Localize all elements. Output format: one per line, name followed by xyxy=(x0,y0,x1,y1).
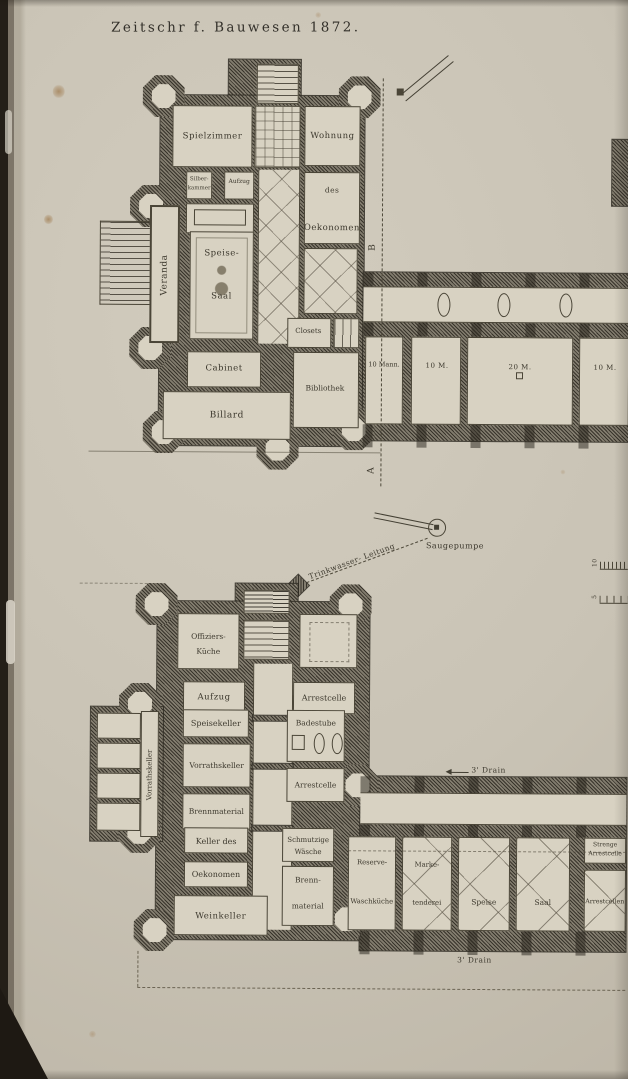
buttress-band xyxy=(359,948,625,956)
stove-oval xyxy=(437,293,450,317)
closet-cells xyxy=(333,318,359,348)
wing-room-label-waschkueche: Waschküche xyxy=(350,897,393,905)
page-edge-left xyxy=(0,0,26,1079)
bath-stove xyxy=(292,735,305,750)
stove-oval xyxy=(497,293,510,317)
page-edge-top xyxy=(0,0,628,7)
room-label-silberkammer-1: Silber- xyxy=(190,176,209,182)
boundary-dashed-line xyxy=(137,951,138,987)
room-schmutzige-waesche xyxy=(282,828,334,862)
flue-base xyxy=(397,88,404,95)
room-label-oekonomen-basement: Oekonomen xyxy=(192,870,240,879)
bathtub xyxy=(314,733,325,754)
room-label-veranda: Veranda xyxy=(159,255,169,296)
staircase xyxy=(257,64,299,104)
stain xyxy=(44,214,53,224)
pump-label: Saugepumpe xyxy=(426,541,484,550)
pipe-label: Trinkwasser- Leitung xyxy=(308,541,397,581)
room-label-saal: Saal xyxy=(211,291,232,301)
room-label-spielzimmer: Spielzimmer xyxy=(183,131,243,141)
boundary-dashed-line xyxy=(137,987,625,991)
page-edge-right xyxy=(614,0,628,1079)
plate-artwork: Zeitschr f. Bauwesen 1872. Veranda Spiel… xyxy=(0,0,628,1079)
room-label-silberkammer-2: kammer xyxy=(188,185,211,191)
room-offiziers-kueche xyxy=(177,613,239,669)
annex-cell xyxy=(97,743,141,769)
stove-square xyxy=(516,372,523,379)
cellar-room-dashed-vault xyxy=(309,622,349,662)
room-label-closets: Closets xyxy=(295,327,321,335)
buttress-band xyxy=(363,440,628,449)
drain-label-top: 3' Drain xyxy=(471,765,506,774)
room-label-speise: Speise- xyxy=(204,248,239,258)
wall-pier-band xyxy=(364,272,628,288)
wall-pier-band xyxy=(360,824,626,838)
scale-bar-label-top: 10 xyxy=(591,558,598,567)
room-label-des: des xyxy=(325,186,340,195)
wing-room-label-marke: Marke- xyxy=(415,861,440,869)
room-label-kueche: Küche xyxy=(196,647,220,656)
wing-room-label-20m: 20 M. xyxy=(509,363,532,371)
flue-line xyxy=(405,61,453,101)
room-aufzug xyxy=(224,171,254,199)
room-label-keller-des: Keller des xyxy=(196,837,237,846)
tower-room xyxy=(145,592,169,616)
stove-oval xyxy=(559,293,572,317)
section-marker-b: B xyxy=(368,244,378,251)
room-label-material: material xyxy=(292,901,324,910)
flue-line xyxy=(400,55,448,95)
pump-handle xyxy=(374,512,434,530)
room-label-arrestcelle-a: Arrestcelle xyxy=(302,693,347,702)
room-label-speisekeller: Speisekeller xyxy=(191,719,241,728)
room-label-aufzug-basement: Aufzug xyxy=(197,692,230,702)
garden-steps xyxy=(99,221,150,305)
scale-bar-label-bottom: 5 xyxy=(591,595,598,599)
pump-core xyxy=(434,525,439,530)
plate-title: Zeitschr f. Bauwesen 1872. xyxy=(111,19,360,35)
wing-room-label-10m: 10 M. xyxy=(426,362,449,370)
tower-room xyxy=(143,918,167,942)
wing-corridor-basement xyxy=(360,792,626,826)
ground-line xyxy=(89,451,381,454)
room-label-waesche: Wäsche xyxy=(295,848,322,856)
wing-room-20m xyxy=(467,337,574,426)
page-edge-bottom xyxy=(0,1070,628,1079)
wing-room-label-saal: Saal xyxy=(535,898,552,907)
stain xyxy=(315,12,321,18)
section-marker-a: A xyxy=(366,467,376,474)
buffet-table xyxy=(194,209,246,225)
room-label-schmutzige: Schmutzige xyxy=(287,836,329,844)
room-label-wohnung: Wohnung xyxy=(310,131,354,141)
torn-paper-edge xyxy=(5,110,12,154)
wall-pier-band xyxy=(360,776,626,794)
stain xyxy=(53,84,65,98)
drain-arrow-line xyxy=(449,772,469,773)
room-label-vorrathskeller-vertical: Vorrathskeller xyxy=(145,750,153,801)
room-label-badestube: Badestube xyxy=(296,718,336,727)
drain-label-bottom: 3' Drain xyxy=(457,955,492,964)
wing-room-10mann xyxy=(365,336,404,424)
wall-pier-band xyxy=(363,424,628,442)
room-label-vorrathskeller: Vorrathskeller xyxy=(189,761,243,770)
bathtub xyxy=(332,733,343,754)
room-label-brennmaterial: Brennmaterial xyxy=(189,807,244,816)
tower-room xyxy=(265,437,289,461)
annex-cell xyxy=(96,773,140,799)
room-label-bibliothek: Bibliothek xyxy=(305,383,344,392)
wing-room-10m xyxy=(411,337,462,425)
stain xyxy=(89,1031,96,1038)
room-des-oekonomen xyxy=(304,172,360,244)
ground-dashed-line xyxy=(80,583,158,584)
room-label-weinkeller: Weinkeller xyxy=(195,911,246,921)
room-label-offiziers: Offiziers- xyxy=(191,632,226,641)
wing-room-label-reserve: Reserve- xyxy=(357,858,387,866)
annex-cell xyxy=(96,803,140,831)
torn-paper-edge xyxy=(6,600,15,664)
room-label-cabinet: Cabinet xyxy=(205,363,242,373)
wall-pier-band xyxy=(360,930,626,950)
wing-room-label-tenderei: tenderei xyxy=(412,899,441,907)
room-label-arrestcelle-b: Arrestcelle xyxy=(295,780,337,789)
vaulted-corridor xyxy=(303,248,357,314)
wing-room-label-10mann: 10 Mann. xyxy=(368,360,399,368)
water-tank xyxy=(244,590,290,614)
annex-cell xyxy=(97,713,141,739)
room-label-oekonomen: Oekonomen xyxy=(304,223,360,233)
wing-room-label-speise: Speise xyxy=(471,897,496,906)
staircase xyxy=(243,620,289,660)
room-label-brenn: Brenn- xyxy=(295,875,321,884)
wing-corridor xyxy=(363,286,628,324)
scan-page: { "plate": { "title": "Zeitschr f. Bauwe… xyxy=(0,0,628,1079)
room-label-billard: Billard xyxy=(210,410,244,420)
stain xyxy=(560,470,565,475)
room-label-aufzug: Aufzug xyxy=(229,178,250,185)
stair-hall xyxy=(254,106,300,168)
